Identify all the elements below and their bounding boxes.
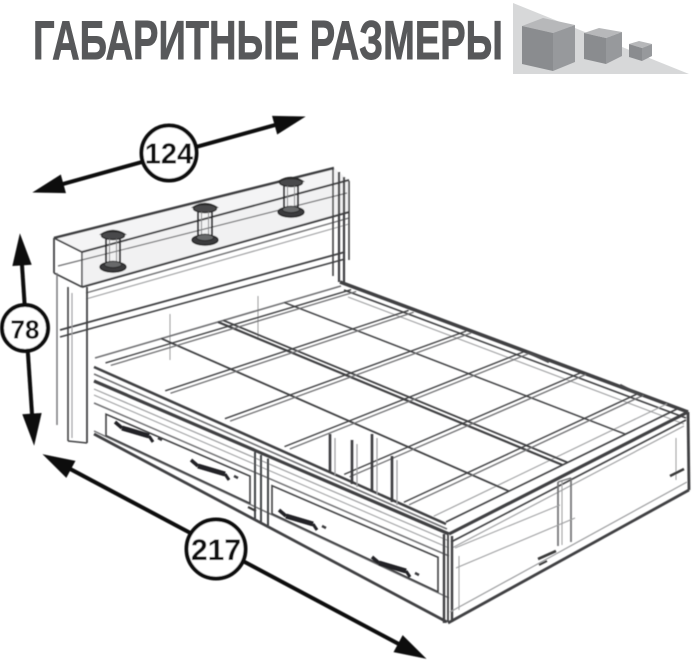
svg-text:217: 217 (191, 534, 241, 567)
svg-text:78: 78 (11, 315, 40, 345)
svg-text:124: 124 (145, 139, 193, 171)
